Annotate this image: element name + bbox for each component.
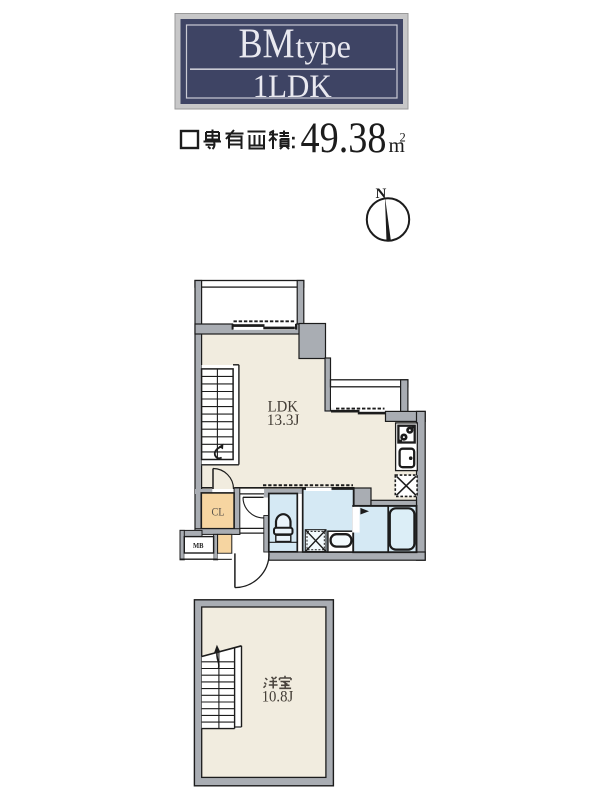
svg-text:type: type bbox=[296, 30, 352, 66]
svg-text:MB: MB bbox=[193, 542, 204, 550]
svg-text:49.38: 49.38 bbox=[301, 115, 387, 162]
svg-text:1LDK: 1LDK bbox=[253, 69, 332, 105]
svg-text:N: N bbox=[376, 186, 387, 202]
svg-text:10.8J: 10.8J bbox=[262, 688, 294, 705]
svg-text:BM: BM bbox=[239, 21, 295, 68]
svg-text:2: 2 bbox=[400, 131, 406, 145]
svg-text:13.3J: 13.3J bbox=[267, 412, 300, 429]
svg-text:CL: CL bbox=[212, 505, 225, 519]
